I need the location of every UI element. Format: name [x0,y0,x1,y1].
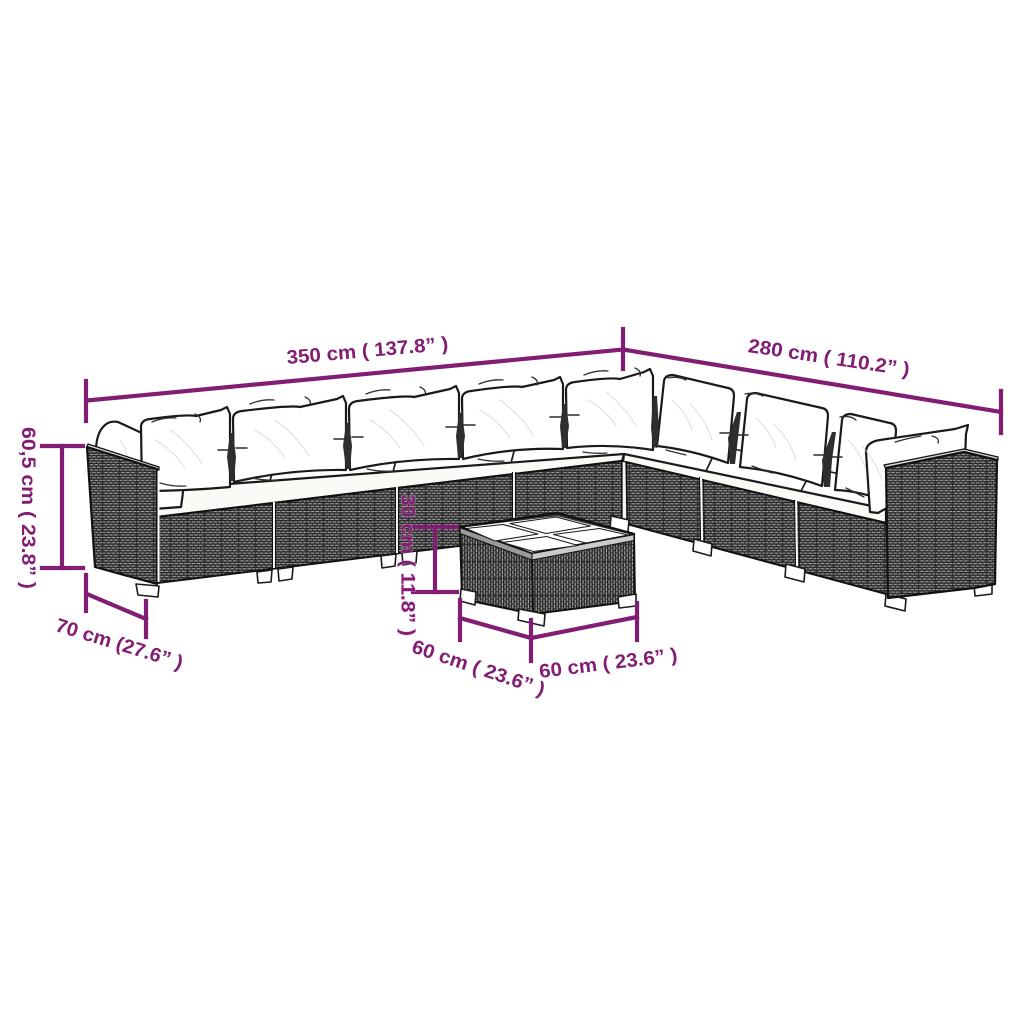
svg-text:30 cm ( 11.8” ): 30 cm ( 11.8” ) [397,494,419,636]
svg-text:60,5 cm ( 23.8” ): 60,5 cm ( 23.8” ) [17,427,39,589]
